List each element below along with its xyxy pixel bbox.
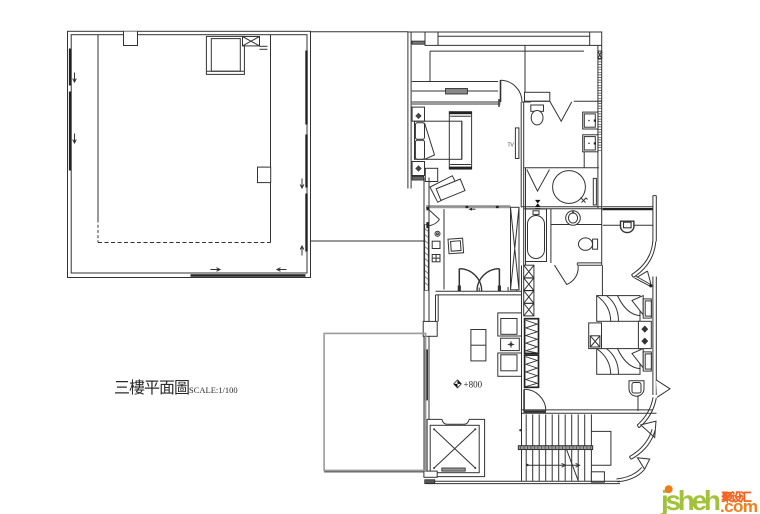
- svg-text:TV: TV: [508, 143, 515, 149]
- svg-text:.com: .com: [720, 497, 758, 514]
- svg-text:+800: +800: [464, 380, 483, 390]
